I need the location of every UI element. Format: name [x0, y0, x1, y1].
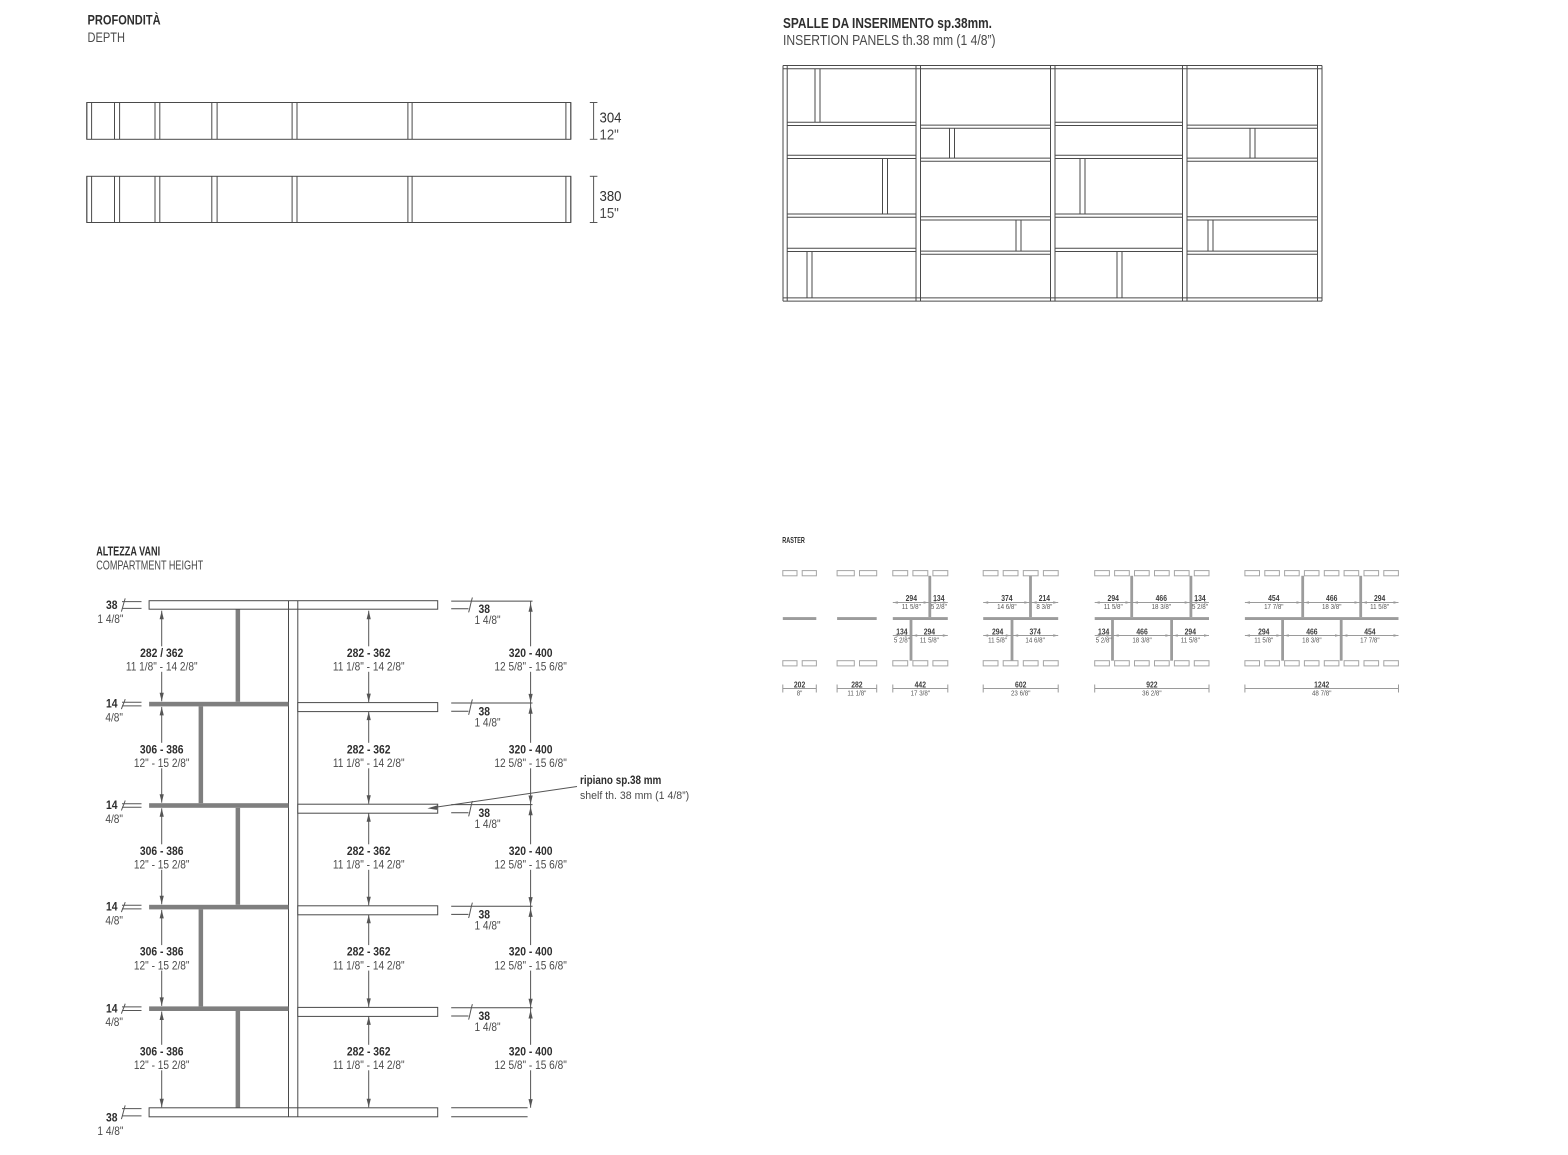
svg-text:306 - 386: 306 - 386 — [140, 744, 184, 757]
svg-text:11 1/8" - 14 2/8": 11 1/8" - 14 2/8" — [333, 960, 405, 973]
svg-text:282 - 362: 282 - 362 — [347, 744, 391, 757]
svg-text:12" - 15 2/8": 12" - 15 2/8" — [134, 1060, 190, 1073]
svg-text:5 2/8": 5 2/8" — [931, 604, 948, 612]
svg-text:282 / 362: 282 / 362 — [140, 647, 183, 660]
svg-text:602: 602 — [1015, 680, 1026, 690]
svg-text:320 - 400: 320 - 400 — [509, 845, 553, 858]
svg-text:18 3/8": 18 3/8" — [1322, 604, 1342, 612]
svg-text:454: 454 — [1268, 593, 1280, 603]
svg-text:374: 374 — [1001, 593, 1013, 603]
svg-text:374: 374 — [1029, 627, 1041, 637]
svg-text:38: 38 — [106, 600, 118, 613]
svg-text:282: 282 — [851, 680, 862, 690]
svg-text:38: 38 — [106, 1112, 118, 1125]
svg-text:14: 14 — [106, 901, 118, 914]
svg-text:1 4/8": 1 4/8" — [97, 1125, 123, 1138]
svg-text:4/8": 4/8" — [105, 915, 123, 928]
svg-text:380: 380 — [600, 187, 622, 204]
svg-text:11 5/8": 11 5/8" — [1104, 604, 1124, 612]
svg-text:304: 304 — [600, 109, 622, 126]
svg-text:ALTEZZA VANI: ALTEZZA VANI — [96, 545, 160, 559]
svg-text:12" - 15 2/8": 12" - 15 2/8" — [134, 758, 190, 771]
svg-text:282 - 362: 282 - 362 — [347, 845, 391, 858]
svg-text:202: 202 — [794, 680, 805, 690]
svg-text:15": 15" — [600, 204, 619, 221]
svg-text:294: 294 — [906, 593, 918, 603]
svg-text:14: 14 — [106, 800, 118, 813]
svg-text:306 - 386: 306 - 386 — [140, 1046, 184, 1059]
svg-text:294: 294 — [992, 627, 1004, 637]
svg-text:4/8": 4/8" — [105, 813, 123, 826]
svg-text:18 3/8": 18 3/8" — [1152, 604, 1172, 612]
svg-text:1242: 1242 — [1314, 680, 1329, 690]
svg-text:306 - 386: 306 - 386 — [140, 946, 184, 959]
svg-text:466: 466 — [1326, 593, 1337, 603]
svg-text:294: 294 — [1258, 627, 1270, 637]
svg-text:5 2/8": 5 2/8" — [1192, 604, 1209, 612]
svg-text:282 - 362: 282 - 362 — [347, 647, 391, 660]
svg-text:282 - 362: 282 - 362 — [347, 946, 391, 959]
svg-text:12 5/8" - 15 6/8": 12 5/8" - 15 6/8" — [494, 859, 567, 872]
svg-text:5 2/8": 5 2/8" — [1096, 637, 1113, 645]
svg-text:4/8": 4/8" — [105, 712, 123, 725]
svg-text:11 1/8" - 14 2/8": 11 1/8" - 14 2/8" — [333, 758, 405, 771]
svg-text:12 5/8" - 15 6/8": 12 5/8" - 15 6/8" — [494, 661, 567, 674]
svg-text:11 5/8": 11 5/8" — [1254, 637, 1274, 645]
svg-text:11 5/8": 11 5/8" — [1181, 637, 1201, 645]
svg-text:134: 134 — [896, 627, 908, 637]
svg-text:RASTER: RASTER — [782, 535, 805, 546]
svg-text:8": 8" — [797, 690, 803, 698]
svg-text:PROFONDITÀ: PROFONDITÀ — [88, 11, 161, 27]
svg-text:ripiano sp.38 mm: ripiano sp.38 mm — [580, 775, 661, 788]
svg-text:454: 454 — [1364, 627, 1376, 637]
svg-text:282 - 362: 282 - 362 — [347, 1046, 391, 1059]
svg-text:12": 12" — [600, 126, 619, 143]
svg-text:11 1/8" - 14 2/8": 11 1/8" - 14 2/8" — [333, 661, 405, 674]
svg-text:922: 922 — [1146, 680, 1157, 690]
svg-text:11 5/8": 11 5/8" — [1370, 604, 1390, 612]
svg-text:14 6/8": 14 6/8" — [997, 604, 1017, 612]
svg-text:17 7/8": 17 7/8" — [1360, 637, 1380, 645]
svg-text:17 3/8": 17 3/8" — [911, 690, 931, 698]
svg-text:11 5/8": 11 5/8" — [920, 637, 940, 645]
svg-text:11 1/8" - 14 2/8": 11 1/8" - 14 2/8" — [126, 661, 198, 674]
svg-text:1 4/8": 1 4/8" — [475, 717, 501, 730]
svg-text:48 7/8": 48 7/8" — [1312, 690, 1332, 698]
svg-text:12 5/8" - 15 6/8": 12 5/8" - 15 6/8" — [494, 1060, 567, 1073]
svg-text:12" - 15 2/8": 12" - 15 2/8" — [134, 859, 190, 872]
svg-text:SPALLE DA INSERIMENTO sp.38mm.: SPALLE DA INSERIMENTO sp.38mm. — [783, 14, 992, 31]
svg-text:442: 442 — [915, 680, 926, 690]
svg-text:134: 134 — [1194, 593, 1206, 603]
svg-text:1 4/8": 1 4/8" — [475, 920, 501, 933]
svg-text:shelf th. 38 mm (1 4/8”): shelf th. 38 mm (1 4/8”) — [580, 789, 689, 801]
svg-text:320 - 400: 320 - 400 — [509, 1046, 553, 1059]
svg-text:COMPARTMENT HEIGHT: COMPARTMENT HEIGHT — [96, 559, 203, 573]
svg-text:1 4/8": 1 4/8" — [475, 818, 501, 831]
svg-text:320 - 400: 320 - 400 — [509, 744, 553, 757]
svg-text:320 - 400: 320 - 400 — [509, 946, 553, 959]
svg-text:1 4/8": 1 4/8" — [475, 1022, 501, 1035]
svg-text:11 5/8": 11 5/8" — [902, 604, 922, 612]
svg-text:DEPTH: DEPTH — [88, 30, 125, 45]
svg-text:11 5/8": 11 5/8" — [988, 637, 1008, 645]
svg-text:214: 214 — [1039, 593, 1051, 603]
svg-text:12" - 15 2/8": 12" - 15 2/8" — [134, 960, 190, 973]
svg-text:320 - 400: 320 - 400 — [509, 647, 553, 660]
svg-text:134: 134 — [1098, 627, 1110, 637]
svg-text:294: 294 — [1185, 627, 1197, 637]
svg-text:11 1/8" - 14 2/8": 11 1/8" - 14 2/8" — [333, 859, 405, 872]
svg-text:23 6/8": 23 6/8" — [1011, 690, 1031, 698]
svg-text:17 7/8": 17 7/8" — [1264, 604, 1284, 612]
svg-text:466: 466 — [1136, 627, 1147, 637]
svg-text:14: 14 — [106, 1003, 118, 1016]
svg-text:1 4/8": 1 4/8" — [475, 614, 501, 627]
svg-text:8 3/8": 8 3/8" — [1036, 604, 1053, 612]
svg-text:18 3/8": 18 3/8" — [1302, 637, 1322, 645]
svg-text:5 2/8": 5 2/8" — [894, 637, 911, 645]
svg-text:11 1/8": 11 1/8" — [847, 690, 867, 698]
svg-text:14 6/8": 14 6/8" — [1025, 637, 1045, 645]
svg-text:18 3/8": 18 3/8" — [1132, 637, 1152, 645]
svg-text:11 1/8" - 14 2/8": 11 1/8" - 14 2/8" — [333, 1060, 405, 1073]
svg-text:1 4/8": 1 4/8" — [97, 614, 123, 627]
svg-text:294: 294 — [1374, 593, 1386, 603]
svg-text:134: 134 — [933, 593, 945, 603]
svg-text:36 2/8": 36 2/8" — [1142, 690, 1162, 698]
svg-text:294: 294 — [924, 627, 936, 637]
svg-text:294: 294 — [1108, 593, 1120, 603]
svg-text:12 5/8" - 15 6/8": 12 5/8" - 15 6/8" — [494, 758, 567, 771]
svg-text:466: 466 — [1306, 627, 1317, 637]
svg-text:4/8": 4/8" — [105, 1016, 123, 1029]
svg-text:12 5/8" - 15 6/8": 12 5/8" - 15 6/8" — [494, 960, 567, 973]
svg-text:466: 466 — [1156, 593, 1167, 603]
svg-text:INSERTION PANELS th.38 mm (1 4: INSERTION PANELS th.38 mm (1 4/8”) — [783, 32, 996, 48]
svg-text:306 - 386: 306 - 386 — [140, 845, 184, 858]
svg-text:14: 14 — [106, 698, 118, 711]
